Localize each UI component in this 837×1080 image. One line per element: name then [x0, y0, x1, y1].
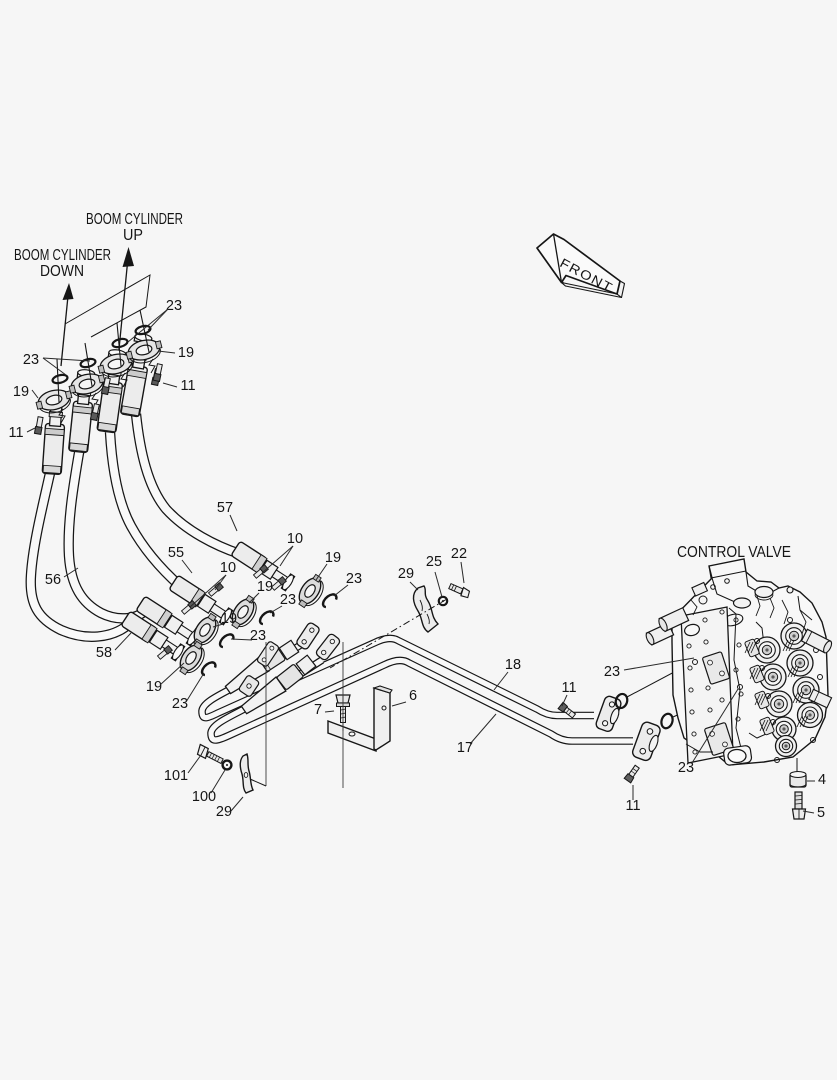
svg-text:5: 5 [817, 805, 825, 821]
svg-text:10: 10 [287, 531, 303, 547]
svg-text:19: 19 [178, 345, 194, 361]
svg-text:19: 19 [325, 550, 341, 566]
svg-text:22: 22 [451, 546, 467, 562]
svg-text:DOWN: DOWN [40, 263, 84, 280]
svg-text:101: 101 [164, 768, 188, 784]
svg-text:23: 23 [23, 352, 39, 368]
svg-text:25: 25 [426, 554, 442, 570]
svg-text:BOOM CYLINDER: BOOM CYLINDER [86, 211, 183, 228]
svg-text:56: 56 [45, 572, 61, 588]
svg-text:29: 29 [398, 566, 414, 582]
svg-text:CONTROL VALVE: CONTROL VALVE [677, 544, 791, 561]
svg-text:23: 23 [250, 628, 266, 644]
svg-text:11: 11 [625, 798, 640, 814]
svg-text:19: 19 [13, 384, 29, 400]
svg-text:BOOM CYLINDER: BOOM CYLINDER [14, 247, 111, 264]
svg-text:11: 11 [180, 378, 195, 394]
svg-text:17: 17 [457, 740, 473, 756]
svg-text:10: 10 [220, 560, 236, 576]
svg-text:7: 7 [314, 702, 322, 718]
svg-text:18: 18 [505, 657, 521, 673]
svg-text:55: 55 [168, 545, 184, 561]
svg-text:23: 23 [678, 760, 694, 776]
svg-text:23: 23 [280, 592, 296, 608]
svg-text:23: 23 [172, 696, 188, 712]
svg-text:6: 6 [409, 688, 417, 704]
svg-text:4: 4 [818, 772, 826, 788]
svg-text:19: 19 [257, 579, 273, 595]
svg-text:19: 19 [221, 611, 237, 627]
svg-text:58: 58 [96, 645, 112, 661]
svg-text:11: 11 [8, 425, 23, 441]
svg-text:19: 19 [146, 679, 162, 695]
svg-text:23: 23 [346, 571, 362, 587]
svg-text:23: 23 [166, 298, 182, 314]
svg-text:UP: UP [123, 227, 143, 244]
svg-text:11: 11 [561, 680, 576, 696]
svg-text:57: 57 [217, 500, 233, 516]
svg-text:29: 29 [216, 804, 232, 820]
svg-text:23: 23 [604, 664, 620, 680]
